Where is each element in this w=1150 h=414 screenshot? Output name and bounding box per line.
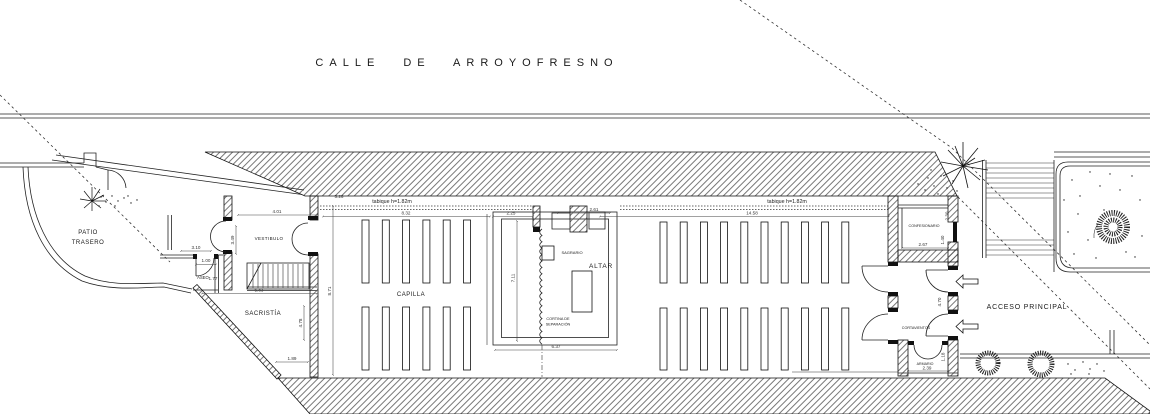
- label-tabique-left: tabique h=1.82m: [372, 199, 412, 205]
- low-wall: [960, 330, 1150, 375]
- dimension-label: 5.83: [255, 288, 264, 293]
- pew-bench: [700, 222, 707, 283]
- dimension-label: 5.26: [335, 194, 344, 199]
- label-aseo: ASEO: [197, 275, 209, 280]
- label-cortina-separacion: CORTINA DESEPARACIÓN: [546, 317, 571, 327]
- pew-bench: [781, 308, 788, 370]
- hedge-shrub: [978, 353, 1052, 375]
- label-cortavientos: CORTAVIENTOS: [902, 326, 931, 330]
- entry-arrow-icon: [956, 320, 978, 333]
- street-kerb-lines: [0, 114, 1150, 157]
- planter-bed: [1056, 162, 1150, 272]
- label-altar: ALTAR: [589, 263, 613, 270]
- pew-bench: [700, 308, 707, 370]
- label-vestibulo: VESTIBULO: [255, 236, 284, 241]
- dimension-label: 2.61: [590, 207, 599, 212]
- partition-tabique: [320, 206, 888, 210]
- label-confesionario: CONFESIONARIO: [909, 224, 940, 228]
- label-tabique-right: tabique h=1.82m: [767, 199, 807, 205]
- pew-bench: [443, 307, 450, 370]
- dimension-label: 2.67: [919, 242, 928, 247]
- pew-bench: [403, 307, 410, 370]
- pew-bench: [801, 308, 808, 370]
- label-capilla: CAPILLA: [397, 292, 425, 298]
- pew-bench: [660, 308, 667, 370]
- pew-bench: [842, 308, 849, 370]
- pew-bench: [464, 220, 471, 283]
- label-sagrario: SAGRARIO: [561, 250, 582, 255]
- chapel-east-wall: [862, 196, 898, 344]
- dimension-label: 1.77: [209, 276, 218, 281]
- dimension-label: 2.30: [945, 211, 950, 220]
- north-party-wall: [205, 152, 957, 196]
- south-party-wall: [278, 378, 1150, 414]
- facade-window: [953, 222, 957, 242]
- dimension-label: 8.71: [327, 286, 332, 295]
- dimension-label: 2.25: [507, 211, 516, 216]
- dimension-label: 4.01: [273, 209, 282, 214]
- pew-bench: [721, 222, 728, 283]
- entry-arrow-icon: [956, 275, 978, 288]
- pew-bench: [443, 220, 450, 283]
- sagrario-box: [542, 246, 554, 260]
- pew-bench: [362, 307, 369, 370]
- dimension-label: 3.10: [192, 245, 201, 250]
- patio-walls: [0, 153, 192, 293]
- altar-table: [572, 271, 592, 312]
- pew-bench: [822, 308, 829, 370]
- label-armario: ARMARIO: [917, 362, 934, 366]
- pew-bench: [741, 308, 748, 370]
- pew-bench: [680, 222, 687, 283]
- dimension-label: 1.40: [940, 235, 945, 244]
- pew-bench: [761, 308, 768, 370]
- pew-bench: [781, 222, 788, 283]
- dimension-label: 14.58: [746, 211, 758, 216]
- pew-bench: [660, 222, 667, 283]
- dimension-label: 4.70: [937, 297, 942, 306]
- entrance-steps: [983, 160, 1055, 272]
- dimension-label: 2.39: [923, 366, 932, 371]
- pew-bench: [464, 307, 471, 370]
- pew-bench: [801, 222, 808, 283]
- pew-bench: [721, 308, 728, 370]
- pew-bench: [822, 222, 829, 283]
- gravel-dots-path: [1067, 361, 1104, 374]
- patio-plant: [80, 187, 106, 211]
- chapel-west-wall: [292, 196, 318, 377]
- entrance-arrows: [956, 275, 978, 333]
- dimension-label: 6.37: [552, 344, 561, 349]
- facade-wall: [926, 196, 958, 376]
- pew-bench: [761, 222, 768, 283]
- dimension-label: 7.11: [511, 273, 516, 282]
- label-acceso-principal: ACCESO PRINCIPAL: [987, 304, 1068, 311]
- dimension-label: 1.00: [202, 258, 211, 263]
- staircase: [247, 263, 309, 289]
- dimension-label: 1.89: [288, 356, 297, 361]
- chancel-platform: [487, 206, 617, 377]
- pew-bench: [842, 222, 849, 283]
- pew-bench: [403, 220, 410, 283]
- pew-bench: [680, 308, 687, 370]
- label-sacristia: SACRISTÍA: [245, 310, 281, 317]
- pew-bench: [741, 222, 748, 283]
- floor-plan: CALLE DE ARROYOFRESNO: [0, 0, 1150, 414]
- street-name-label: CALLE DE ARROYOFRESNO: [315, 57, 618, 69]
- planter-shrub: [1094, 213, 1127, 241]
- label-patio-trasero: PATIOTRASERO: [72, 230, 105, 246]
- room-labels-layer: PATIOTRASEROVESTIBULOASEOSACRISTÍACAPILL…: [72, 199, 1068, 366]
- pew-bench: [382, 220, 389, 283]
- dimension-label: 8.32: [402, 211, 411, 216]
- dimension-label: 1.18: [941, 352, 946, 361]
- sacristy-walls: [193, 285, 317, 380]
- floor-plan-svg: CALLE DE ARROYOFRESNO: [0, 0, 1150, 414]
- pew-bench: [362, 220, 369, 283]
- dimension-label: 4.78: [298, 318, 303, 327]
- dimension-label: 3.49: [230, 235, 235, 244]
- pew-bench: [423, 220, 430, 283]
- pew-bench: [382, 307, 389, 370]
- pews-layer: [362, 220, 849, 370]
- pew-bench: [423, 307, 430, 370]
